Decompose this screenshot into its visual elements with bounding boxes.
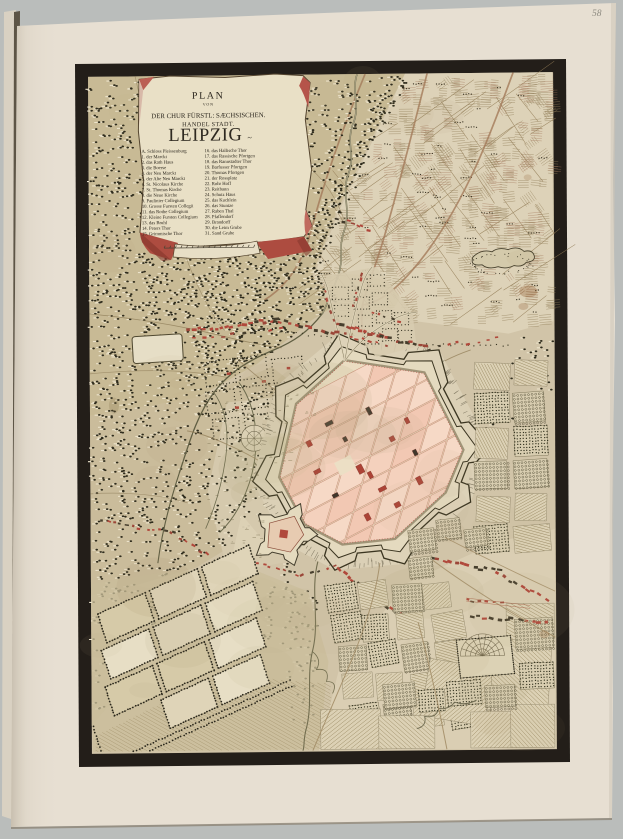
svg-text:20. Thomas Pfortgen: 20. Thomas Pfortgen xyxy=(205,171,245,176)
svg-text:25. das Kuchlein: 25. das Kuchlein xyxy=(205,198,237,203)
svg-text:LEIPZIG: LEIPZIG xyxy=(168,125,242,146)
svg-text:1. der Marckt: 1. der Marckt xyxy=(142,155,168,160)
svg-text:58: 58 xyxy=(592,9,602,19)
svg-text:24. Schutz Haus: 24. Schutz Haus xyxy=(205,193,236,198)
svg-text:3. die Boerse: 3. die Boerse xyxy=(142,166,167,171)
svg-text:4. der Neu Marckt: 4. der Neu Marckt xyxy=(142,171,177,176)
svg-text:8. die Neue Kirche: 8. die Neue Kirche xyxy=(142,193,177,198)
svg-text:A. Schloss Pleissenburg: A. Schloss Pleissenburg xyxy=(141,149,187,154)
svg-text:13. das Bruhl: 13. das Bruhl xyxy=(142,221,168,226)
svg-text:2. das Rath Haus: 2. das Rath Haus xyxy=(142,161,174,166)
svg-text:~: ~ xyxy=(247,133,252,142)
svg-text:27. Raben Thal: 27. Raben Thal xyxy=(205,209,234,214)
svg-text:DER CHUR FÜRSTL: SÆCHSISCHEN.: DER CHUR FÜRSTL: SÆCHSISCHEN. xyxy=(151,112,265,120)
svg-text:PLAN: PLAN xyxy=(192,90,225,101)
svg-text:22. Rohr Hoff: 22. Rohr Hoff xyxy=(205,182,232,187)
svg-text:26. das Stuntze: 26. das Stuntze xyxy=(205,204,234,209)
svg-text:VON: VON xyxy=(203,102,214,107)
svg-text:14. Peters Thor: 14. Peters Thor xyxy=(142,227,171,232)
svg-text:12. Kleine Fursten Collegium: 12. Kleine Fursten Collegium xyxy=(142,215,198,221)
svg-text:21. der Rossplatz: 21. der Rossplatz xyxy=(205,176,237,181)
svg-text:29. Brandorff: 29. Brandorff xyxy=(205,220,231,225)
svg-text:23. Reitbann: 23. Reitbann xyxy=(205,187,230,192)
svg-text:30. die Leim Grube: 30. die Leim Grube xyxy=(205,226,242,231)
svg-text:15. Grimmische Thor: 15. Grimmische Thor xyxy=(142,232,183,237)
svg-text:28. Pfaffendorf: 28. Pfaffendorf xyxy=(205,215,234,220)
svg-text:31. Sand Grube: 31. Sand Grube xyxy=(205,231,234,236)
